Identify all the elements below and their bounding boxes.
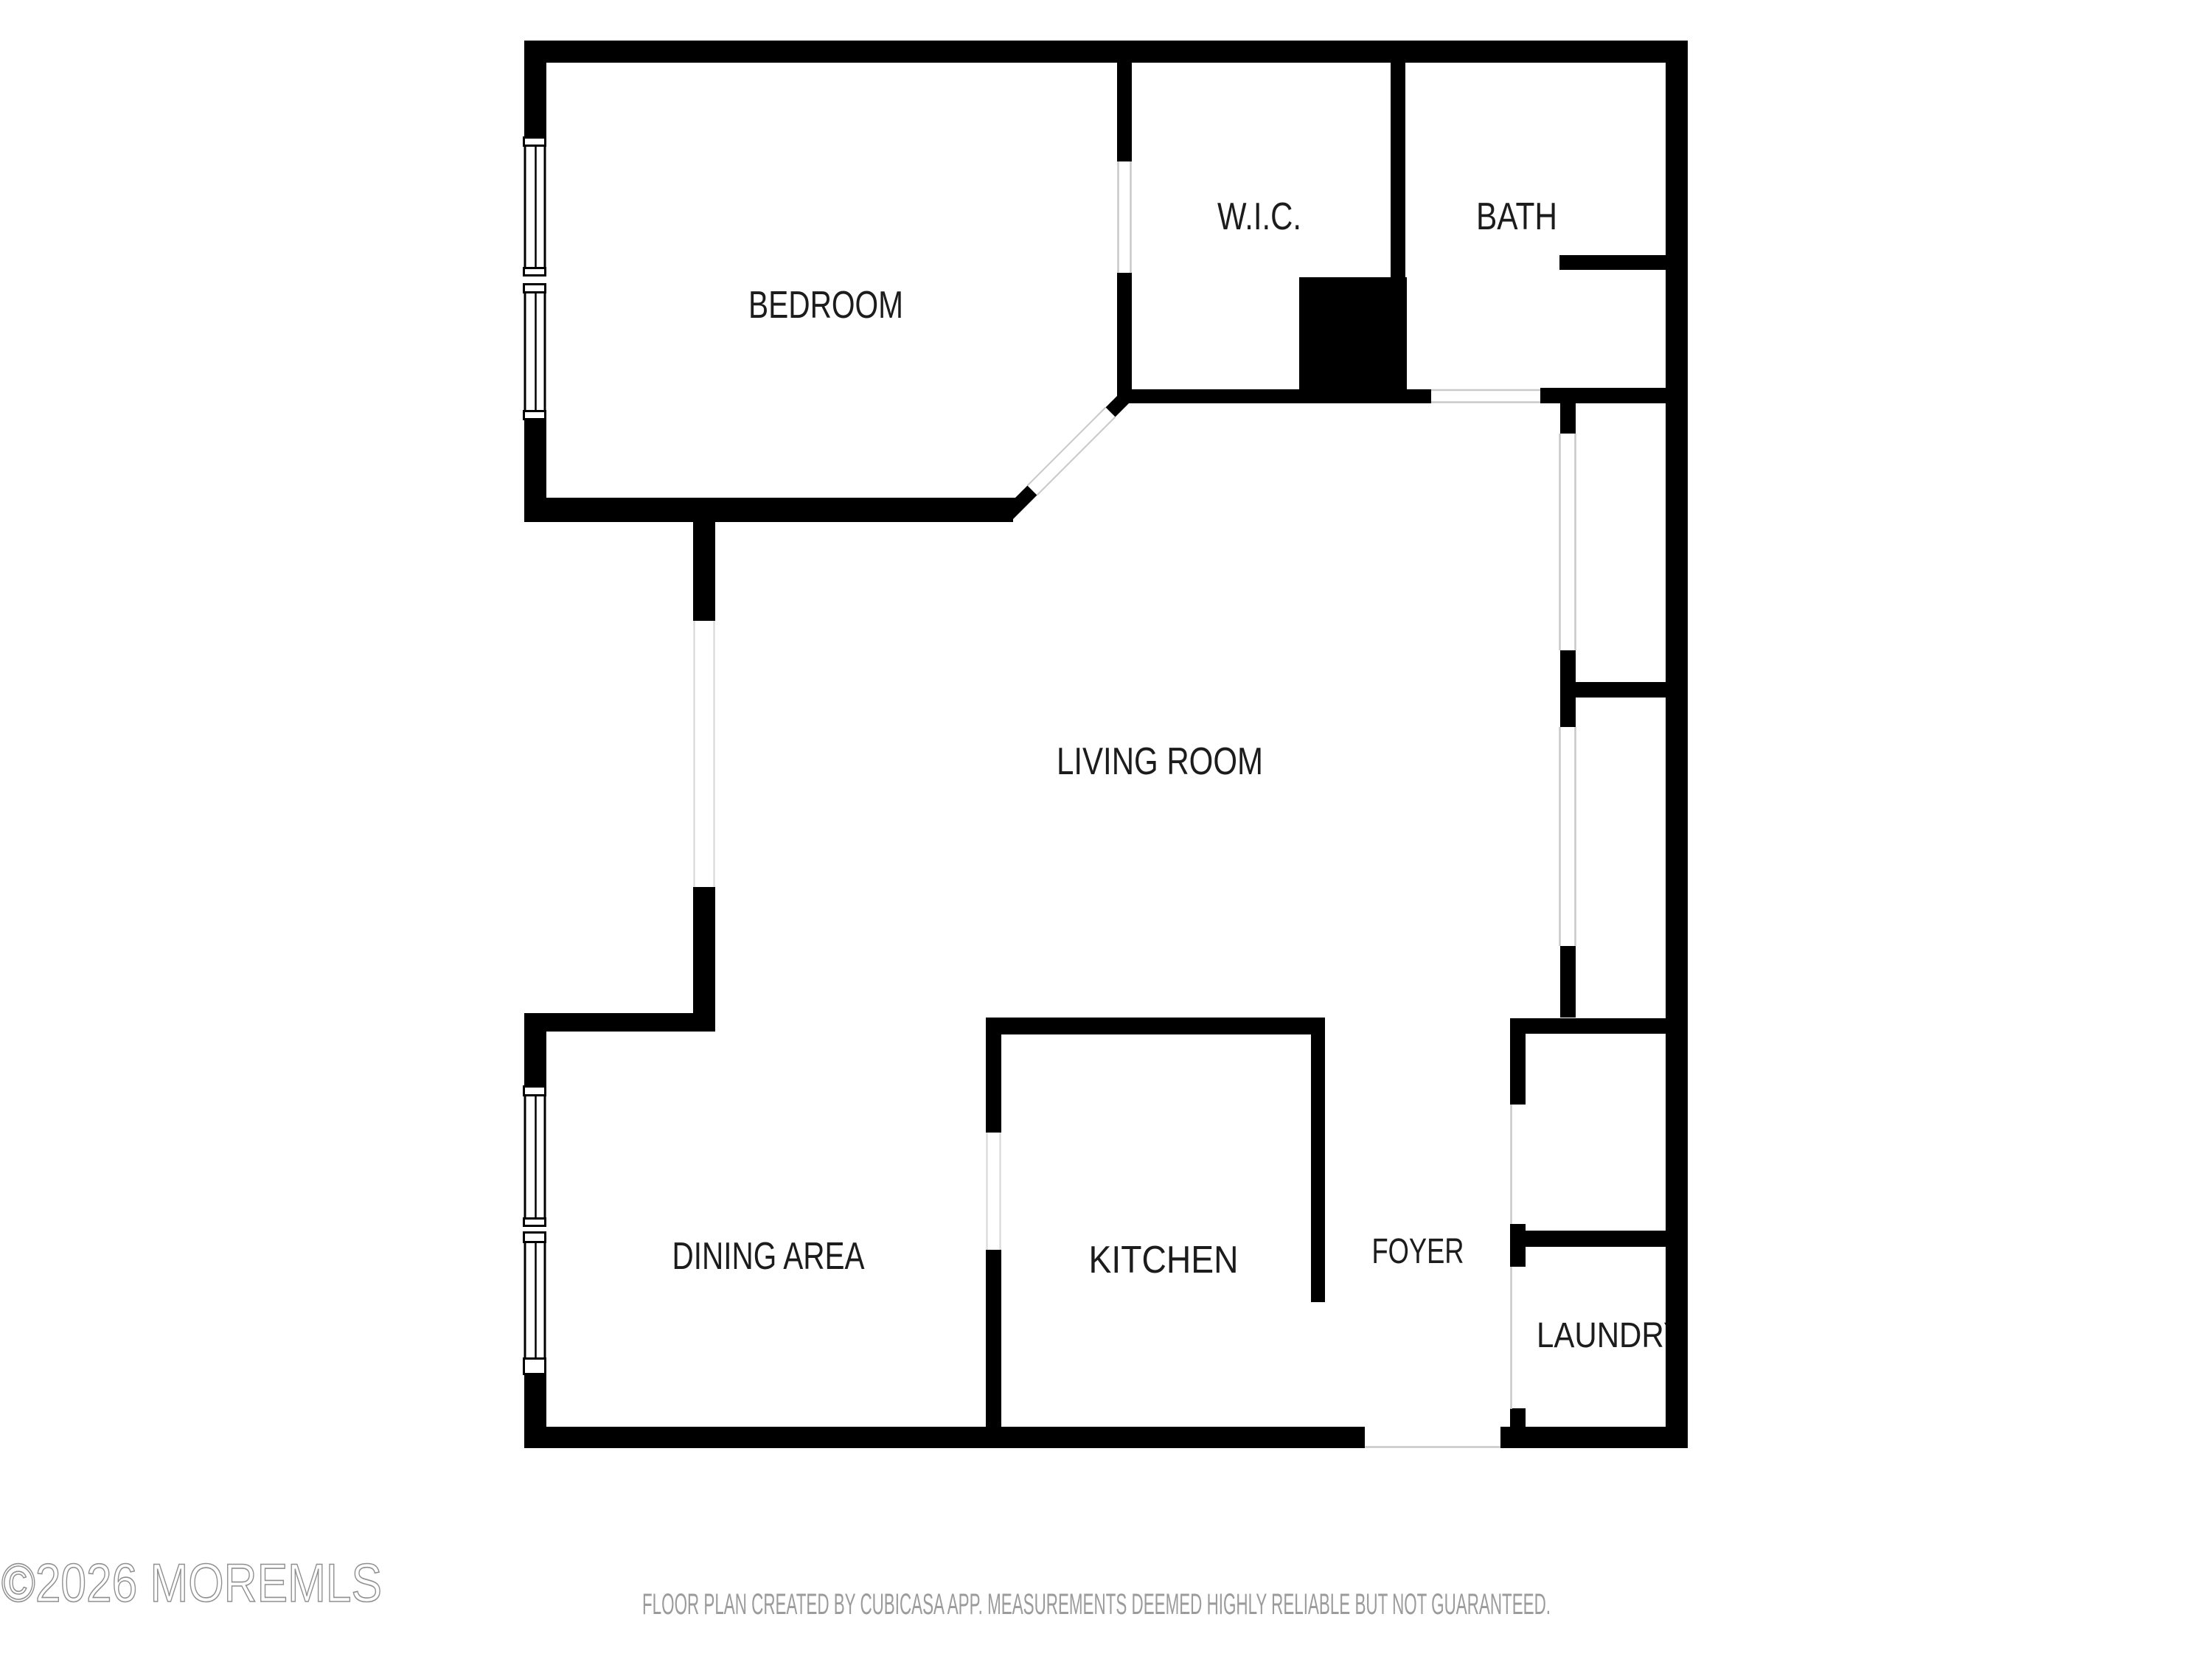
svg-text:DINING AREA: DINING AREA xyxy=(672,1235,865,1278)
svg-text:LIVING ROOM: LIVING ROOM xyxy=(1057,740,1263,783)
svg-text:BATH: BATH xyxy=(1476,195,1557,238)
svg-text:BEDROOM: BEDROOM xyxy=(748,284,903,327)
svg-text:©2026 MOREMLS: ©2026 MOREMLS xyxy=(1,1554,382,1613)
svg-text:W.I.C.: W.I.C. xyxy=(1217,195,1301,238)
svg-text:LAUNDRY: LAUNDRY xyxy=(1537,1316,1684,1355)
svg-text:FLOOR PLAN CREATED BY CUBICASA: FLOOR PLAN CREATED BY CUBICASA APP. MEAS… xyxy=(642,1588,1551,1621)
svg-text:KITCHEN: KITCHEN xyxy=(1089,1239,1239,1281)
svg-text:FOYER: FOYER xyxy=(1372,1232,1464,1271)
